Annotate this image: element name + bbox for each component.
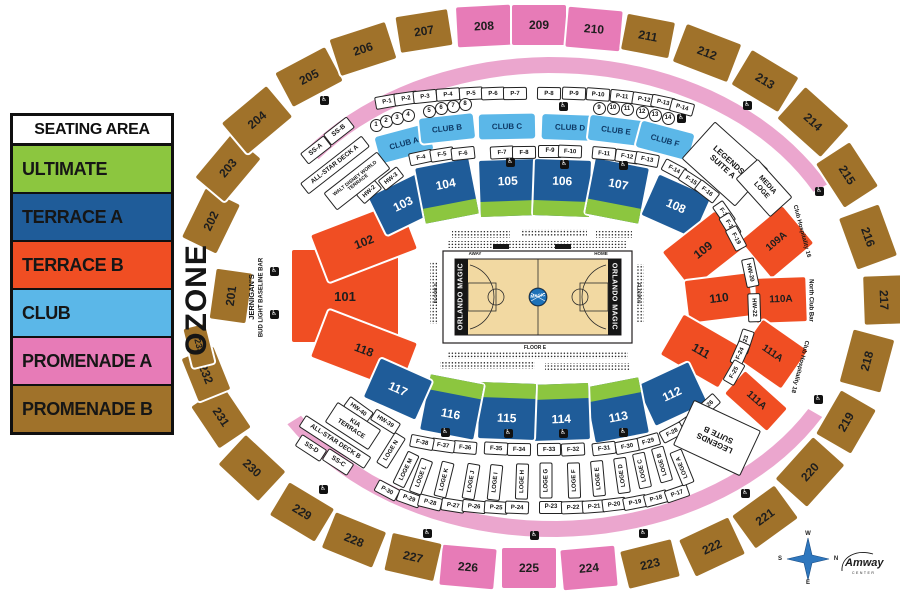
section-label: 220: [787, 447, 833, 497]
portal-f-33: F-33: [537, 442, 561, 455]
area-ss-b[interactable]: SS-B: [323, 116, 355, 146]
wheelchair-icon: ♿: [559, 429, 568, 438]
section-207[interactable]: 207: [396, 9, 453, 53]
legend-item-label: TERRACE A: [22, 207, 123, 228]
area-bud-light-baseline-bar: BUD LIGHT BASELINE BAR: [258, 242, 267, 352]
portal-f-6: F-6: [450, 145, 475, 160]
portal-f-35: F-35: [484, 441, 509, 455]
section-208[interactable]: 208: [456, 5, 512, 48]
section-219[interactable]: 219: [816, 390, 876, 453]
section-label: 226: [441, 559, 496, 576]
section-218[interactable]: 218: [840, 329, 895, 392]
venue-logo-name: Amway: [845, 558, 889, 569]
portal-p-3: P-3: [412, 88, 437, 103]
wheelchair-icon: ♿: [639, 529, 648, 538]
portal-p-9: P-9: [562, 86, 586, 100]
section-213[interactable]: 213: [732, 50, 799, 112]
wheelchair-icon: ♿: [814, 395, 823, 404]
loge-loge-i[interactable]: LOGE I: [487, 463, 504, 500]
suite-circle-8: 8: [459, 98, 472, 111]
club-label: CLUB E: [601, 124, 632, 137]
portal-p-4: P-4: [436, 87, 461, 102]
portal-p-6: P-6: [481, 86, 505, 100]
loge-loge-h[interactable]: LOGE H: [515, 463, 529, 499]
venue-logo-sub: CENTER: [852, 572, 892, 576]
section-label: 111A: [732, 379, 780, 424]
portal-f-38: F-38: [409, 433, 435, 450]
section-206[interactable]: 206: [330, 22, 397, 76]
legend-item-label: TERRACE B: [22, 255, 123, 276]
legend-item-label: PROMENADE A: [22, 351, 152, 372]
seating-legend: SEATING AREA ULTIMATETERRACE ATERRACE BC…: [10, 113, 174, 435]
section-label: 110: [687, 288, 752, 308]
wheelchair-icon: ♿: [270, 310, 279, 319]
section-label: 205: [281, 59, 336, 96]
club-label: CLUB B: [432, 122, 463, 134]
wheelchair-icon: ♿: [423, 529, 432, 538]
court-away-label: AWAY: [462, 252, 488, 257]
portal-hw-22: HW-22: [747, 293, 761, 322]
area-line: North Club Bar: [807, 279, 813, 322]
loge-loge-g[interactable]: LOGE G: [540, 462, 553, 498]
suite-circle-4: 4: [402, 109, 415, 122]
suite-circle-6: 6: [435, 102, 448, 115]
section-201[interactable]: 201: [210, 269, 253, 324]
legend-title: SEATING AREA: [13, 116, 171, 146]
section-label: 206: [334, 34, 393, 63]
section-label: 214: [787, 98, 838, 146]
wheelchair-icon: ♿: [815, 187, 824, 196]
portal-p-8: P-8: [537, 86, 561, 99]
suite-circle-10: 10: [607, 102, 620, 115]
club-label: CLUB D: [555, 122, 586, 132]
area-line: SS-A: [308, 142, 325, 157]
portal-f-30: F-30: [614, 437, 640, 454]
section-222[interactable]: 222: [679, 517, 745, 576]
section-label: 222: [685, 530, 739, 564]
club-label: CLUB A: [388, 135, 419, 151]
compass-right: N: [830, 556, 842, 562]
section-label: 224: [562, 560, 617, 577]
section-label: 221: [740, 497, 789, 537]
portal-f-32: F-32: [561, 442, 586, 456]
section-label: 201: [222, 270, 241, 321]
section-226[interactable]: 226: [439, 545, 496, 590]
floor-e-label: FLOOR E: [505, 346, 565, 351]
legend-item-ultimate: ULTIMATE: [13, 146, 171, 192]
section-label: 225: [502, 562, 556, 574]
section-205[interactable]: 205: [275, 47, 342, 107]
section-label: 109A: [753, 221, 801, 263]
suite-circle-14: 14: [662, 112, 675, 125]
wheelchair-icon: ♿: [270, 267, 279, 276]
legend-item-promenade-a: PROMENADE A: [13, 336, 171, 384]
section-label: 229: [277, 493, 328, 530]
wheelchair-icon: ♿: [743, 101, 752, 110]
portal-p-7: P-7: [503, 86, 527, 99]
portal-f-11: F-11: [591, 145, 616, 160]
section-label: 212: [678, 37, 736, 69]
section-211[interactable]: 211: [621, 14, 675, 58]
section-label: 101: [292, 290, 398, 303]
portal-p-23: P-23: [539, 501, 563, 514]
loge-loge-c[interactable]: LOGE C: [632, 451, 652, 489]
section-label: 227: [387, 546, 438, 569]
ultimate-strip: [480, 200, 536, 216]
wheelchair-icon: ♿: [677, 114, 686, 123]
club-club-c[interactable]: CLUB C: [479, 113, 535, 139]
section-label: 223: [623, 552, 676, 576]
section-label: 216: [853, 210, 883, 265]
section-label: 116: [420, 389, 481, 440]
section-label: 108: [648, 189, 704, 223]
portal-p-24: P-24: [505, 500, 530, 514]
section-label: 209: [512, 19, 566, 31]
area-line: JERNIGAN'S: [248, 274, 256, 320]
section-label: 219: [828, 397, 863, 446]
portal-f-7: F-7: [490, 145, 515, 159]
section-212[interactable]: 212: [673, 24, 741, 82]
section-label: 110A: [756, 294, 806, 306]
suite-circle-9: 9: [593, 102, 606, 115]
wheelchair-icon: ♿: [619, 428, 628, 437]
wheelchair-icon: ♿: [320, 96, 329, 105]
floor-s-label: FLOOR S: [434, 278, 439, 308]
section-227[interactable]: 227: [384, 533, 441, 581]
legend-item-club: CLUB: [13, 288, 171, 336]
endzone-text-right: ORLANDO MAGIC: [611, 260, 618, 334]
portal-f-13: F-13: [634, 150, 660, 167]
section-label: 218: [854, 333, 880, 388]
wheelchair-icon: ♿: [506, 158, 515, 167]
loge-loge-f[interactable]: LOGE F: [567, 462, 581, 498]
club-label: CLUB F: [650, 132, 681, 148]
section-214[interactable]: 214: [777, 87, 848, 157]
loge-loge-j[interactable]: LOGE J: [461, 462, 480, 500]
section-107[interactable]: 107: [585, 158, 649, 223]
section-215[interactable]: 215: [816, 142, 878, 207]
section-228[interactable]: 228: [322, 512, 386, 567]
section-104[interactable]: 104: [415, 158, 479, 223]
section-230[interactable]: 230: [219, 435, 286, 501]
section-225[interactable]: 225: [502, 548, 556, 588]
area-line: SS-B: [331, 123, 348, 138]
wheelchair-icon: ♿: [504, 429, 513, 438]
area-ozone: OZONE: [179, 225, 215, 375]
section-label: 204: [231, 97, 283, 143]
suite-circle-7: 7: [447, 100, 460, 113]
portal-f-8: F-8: [512, 145, 536, 158]
portal-f-34: F-34: [507, 442, 531, 455]
section-217[interactable]: 217: [863, 275, 900, 324]
area-jernigan-s: JERNIGAN'S: [247, 247, 257, 347]
wheelchair-icon: ♿: [619, 161, 628, 170]
section-label: 217: [877, 276, 891, 324]
legend-item-terrace-b: TERRACE B: [13, 240, 171, 288]
loge-loge-k[interactable]: LOGE K: [433, 460, 454, 498]
portal-p-17: P-17: [663, 483, 690, 503]
section-113[interactable]: 113: [585, 377, 649, 442]
section-label: 210: [567, 21, 622, 38]
section-label: 211: [623, 26, 672, 47]
section-label: 207: [397, 21, 450, 41]
legend-item-label: PROMENADE B: [22, 399, 153, 420]
loge-loge-d[interactable]: LOGE D: [613, 456, 631, 493]
suite-circle-12: 12: [636, 106, 649, 119]
endzone-text-left: ORLANDO MAGIC: [458, 260, 465, 334]
area-line: SS-D: [303, 441, 320, 455]
court-home-label: HOME: [588, 252, 614, 257]
section-110A[interactable]: 110A: [755, 277, 807, 323]
area-line: SS-C: [330, 455, 347, 469]
suite-circle-11: 11: [621, 103, 634, 116]
section-110[interactable]: 110: [685, 273, 754, 322]
portal-f-36: F-36: [452, 439, 477, 454]
section-label: 230: [228, 445, 276, 491]
portal-p-10: P-10: [585, 87, 610, 102]
section-label: 117: [370, 372, 426, 406]
section-209[interactable]: 209: [512, 5, 566, 45]
legend-rows: ULTIMATETERRACE ATERRACE BCLUBPROMENADE …: [13, 146, 171, 432]
area-line: BUD LIGHT BASELINE BAR: [259, 257, 265, 336]
section-label: 111A: [747, 334, 797, 373]
portal-f-10: F-10: [558, 144, 583, 158]
section-label: 208: [457, 19, 512, 34]
section-216[interactable]: 216: [839, 204, 897, 269]
legend-item-label: ULTIMATE: [22, 159, 107, 180]
suite-circle-5: 5: [423, 105, 436, 118]
section-label: 228: [327, 524, 382, 555]
legend-item-terrace-a: TERRACE A: [13, 192, 171, 240]
section-label: 231: [202, 393, 240, 441]
section-223[interactable]: 223: [620, 539, 680, 588]
section-224[interactable]: 224: [560, 546, 617, 591]
compass-top: W: [802, 531, 814, 537]
arena-seating-map: 2012022032042052062072082092102112122132…: [0, 0, 900, 600]
compass-bottom: E: [802, 580, 814, 586]
section-label: 213: [739, 62, 791, 100]
wheelchair-icon: ♿: [560, 160, 569, 169]
section-label: 215: [828, 150, 866, 200]
wheelchair-icon: ♿: [441, 428, 450, 437]
loge-loge-b[interactable]: LOGE B: [651, 445, 673, 483]
wheelchair-icon: ♿: [559, 102, 568, 111]
legend-item-label: CLUB: [22, 303, 70, 324]
section-105[interactable]: 105: [479, 159, 537, 217]
wheelchair-icon: ♿: [319, 485, 328, 494]
compass-left: S: [774, 556, 786, 562]
section-220[interactable]: 220: [776, 437, 845, 507]
loge-loge-e[interactable]: LOGE E: [590, 460, 606, 497]
floor-n-label: FLOOR N: [636, 278, 641, 308]
suite-circle-13: 13: [649, 109, 662, 122]
area-line: OZONE: [181, 244, 213, 356]
wheelchair-icon: ♿: [530, 531, 539, 540]
wheelchair-icon: ♿: [741, 489, 750, 498]
legend-item-promenade-b: PROMENADE B: [13, 384, 171, 432]
club-label: CLUB C: [492, 121, 522, 131]
portal-f-31: F-31: [591, 440, 617, 456]
ultimate-strip: [533, 200, 589, 216]
section-210[interactable]: 210: [565, 7, 622, 52]
